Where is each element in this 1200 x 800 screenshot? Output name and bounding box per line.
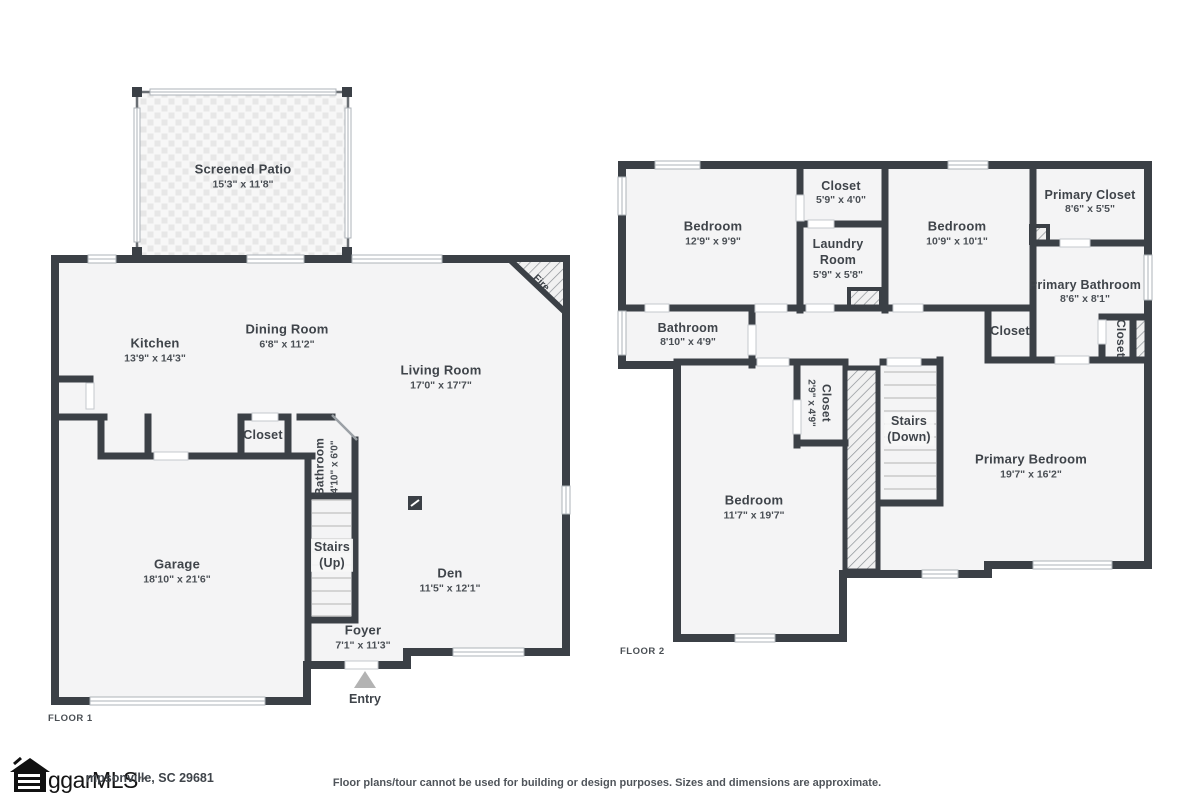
room-label-stairs-down: Stairs (Down) [884, 413, 934, 446]
room-label-closet-top: Closet 5'9" x 4'0" [816, 178, 866, 208]
room-label-den: Den 11'5" x 12'1" [419, 566, 480, 597]
house-logo-icon [8, 756, 52, 794]
entry-arrow-icon [354, 671, 376, 688]
room-label-small-closet: Closet 2'9" x 4'9" [805, 379, 834, 427]
column-post [408, 496, 422, 510]
room-label-primary-bathroom: Primary Bathroom 8'6" x 8'1" [1029, 277, 1141, 307]
room-label-bathroom-f2: Bathroom 8'10" x 4'9" [658, 320, 719, 350]
floor1-plan [55, 87, 570, 705]
floor2-caption: FLOOR 2 [620, 646, 665, 657]
room-label-bedroom-a: Bedroom 12'9" x 9'9" [684, 219, 742, 250]
room-label-bathroom-f1: Bathroom 4'10" x 6'0" [313, 438, 342, 496]
room-label-dining-room: Dining Room 6'8" x 11'2" [245, 322, 328, 353]
room-label-closet-f1: Closet [243, 427, 282, 443]
room-label-kitchen: Kitchen 13'9" x 14'3" [124, 336, 186, 367]
floor1-caption: FLOOR 1 [48, 713, 93, 724]
room-label-bedroom-c: Bedroom 11'7" x 19'7" [723, 493, 784, 524]
room-label-garage: Garage 18'10" x 21'6" [143, 557, 211, 588]
floorplan-page: Screened Patio 15'3" x 11'8" Kitchen 13'… [0, 0, 1200, 800]
room-label-laundry-room: Laundry Room 5'9" x 5'8" [805, 236, 871, 282]
room-label-primary-bedroom: Primary Bedroom 19'7" x 16'2" [975, 452, 1087, 483]
room-label-stairs-up: Stairs (Up) [311, 539, 353, 572]
room-label-screened-patio: Screened Patio 15'3" x 11'8" [195, 162, 292, 193]
room-label-hall-closet: Closet [990, 323, 1029, 339]
entry-label: Entry [349, 692, 381, 706]
room-label-bedroom-b: Bedroom 10'9" x 10'1" [926, 219, 988, 250]
room-label-foyer: Foyer 7'1" x 11'3" [335, 623, 390, 654]
disclaimer-text: Floor plans/tour cannot be used for buil… [333, 777, 881, 789]
room-label-right-closet: Closet [1112, 319, 1128, 357]
room-label-primary-closet: Primary Closet 8'6" x 5'5" [1044, 187, 1135, 217]
listing-address: mpsonville, SC 29681 [86, 771, 214, 785]
floorplan-drawing [0, 0, 1200, 800]
room-label-living-room: Living Room 17'0" x 17'7" [401, 363, 482, 394]
